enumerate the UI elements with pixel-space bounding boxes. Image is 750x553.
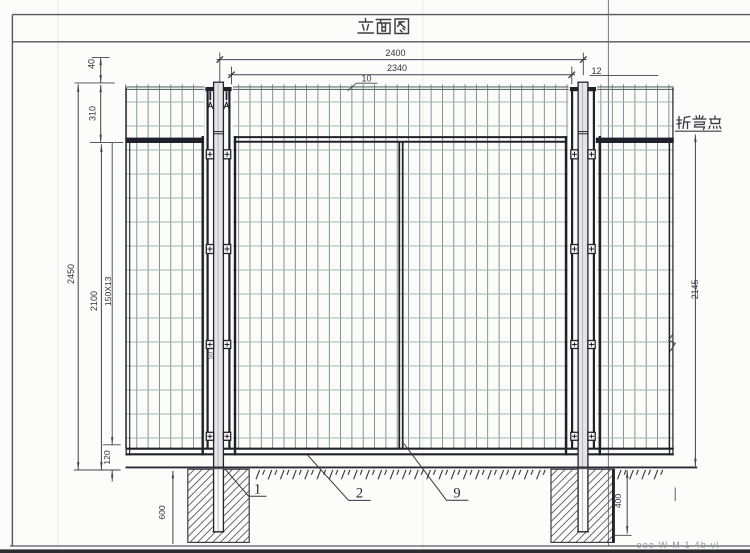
svg-text:600: 600	[157, 505, 167, 520]
svg-text:310: 310	[88, 106, 98, 121]
svg-text:400: 400	[613, 494, 623, 509]
svg-text:120: 120	[102, 450, 112, 465]
svg-text:50: 50	[208, 352, 215, 360]
svg-text:1: 1	[254, 482, 261, 498]
svg-text:2450: 2450	[66, 264, 76, 284]
svg-text:2145: 2145	[690, 280, 700, 300]
svg-text:12: 12	[591, 66, 601, 76]
svg-text:2400: 2400	[385, 48, 405, 58]
svg-text:150X13: 150X13	[103, 276, 113, 306]
svg-text:10: 10	[361, 73, 371, 83]
svg-text:2340: 2340	[387, 63, 407, 73]
svg-text:2100: 2100	[89, 291, 99, 311]
svg-text:9: 9	[453, 486, 460, 502]
svg-text:ooo W M 1 4b vl: ooo W M 1 4b vl	[636, 540, 719, 550]
svg-text:40: 40	[87, 59, 97, 69]
svg-text:2: 2	[356, 486, 363, 502]
